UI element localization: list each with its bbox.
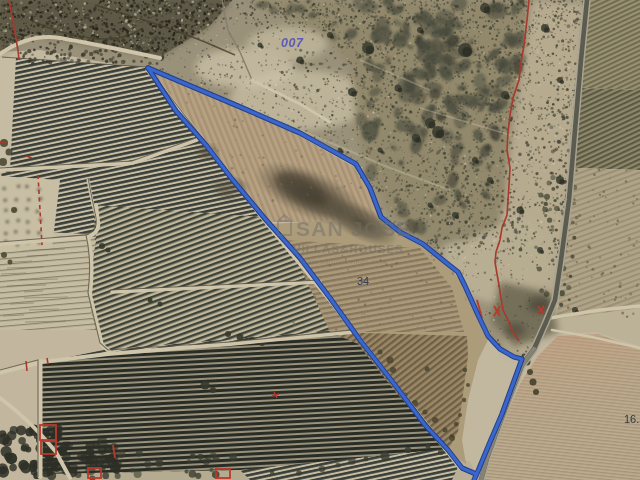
svg-text:007: 007	[281, 36, 304, 50]
svg-text:VILLAS&HOUSES: VILLAS&HOUSES	[293, 243, 404, 255]
svg-text:SAN JOSE: SAN JOSE	[296, 217, 412, 240]
svg-text:16.: 16.	[624, 413, 639, 425]
svg-text:34: 34	[357, 275, 369, 287]
svg-text:www.sanjosevillas.com: www.sanjosevillas.com	[299, 257, 387, 266]
